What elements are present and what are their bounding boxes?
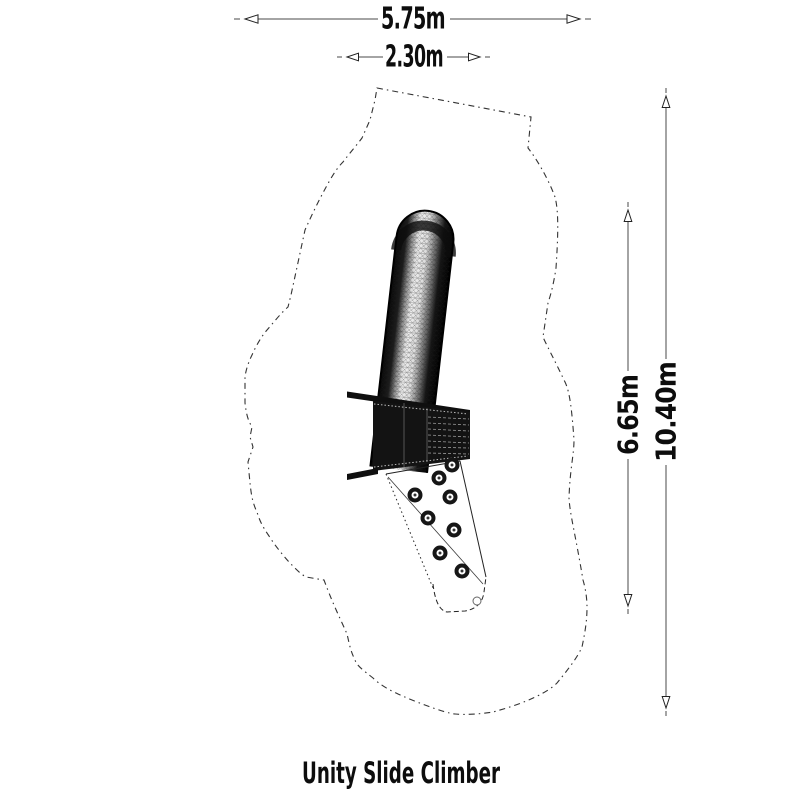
platform-bottom-flange bbox=[347, 468, 378, 480]
arrow-right-icon bbox=[567, 15, 580, 23]
climbing-holds bbox=[410, 460, 468, 577]
product-dimension-drawing: 5.75m 2.30m 6.65m 10.40m bbox=[0, 0, 800, 800]
climbing-wall-right-edge bbox=[460, 461, 486, 577]
dimension-label-safety-area-length: 10.40m bbox=[650, 362, 683, 462]
arrow-down-icon bbox=[624, 595, 632, 607]
climbing-hold bbox=[457, 566, 468, 577]
product-title: Unity Slide Climber bbox=[302, 756, 500, 790]
climbing-wall-bottom-edge bbox=[433, 577, 486, 612]
anchor-ring bbox=[473, 597, 481, 605]
dimension-label-equipment-width: 2.30m bbox=[385, 40, 443, 75]
climbing-hold bbox=[423, 513, 434, 524]
climbing-hold bbox=[445, 492, 456, 503]
dimension-label-safety-area-width: 5.75m bbox=[381, 2, 445, 37]
arrow-left-icon bbox=[245, 15, 258, 23]
dimension-label-equipment-height: 6.65m bbox=[612, 375, 645, 455]
climbing-hold bbox=[410, 490, 421, 501]
arrow-left-icon bbox=[347, 53, 359, 61]
arrow-down-icon bbox=[662, 697, 670, 709]
arrow-right-icon bbox=[469, 53, 481, 61]
climbing-hold bbox=[435, 548, 446, 559]
climbing-hold bbox=[449, 525, 460, 536]
drawing-canvas: 5.75m 2.30m 6.65m 10.40m bbox=[0, 0, 800, 800]
climbing-hold bbox=[434, 473, 445, 484]
arrow-up-icon bbox=[662, 96, 670, 108]
arrow-up-icon bbox=[624, 210, 632, 222]
climbing-hold bbox=[447, 460, 458, 471]
